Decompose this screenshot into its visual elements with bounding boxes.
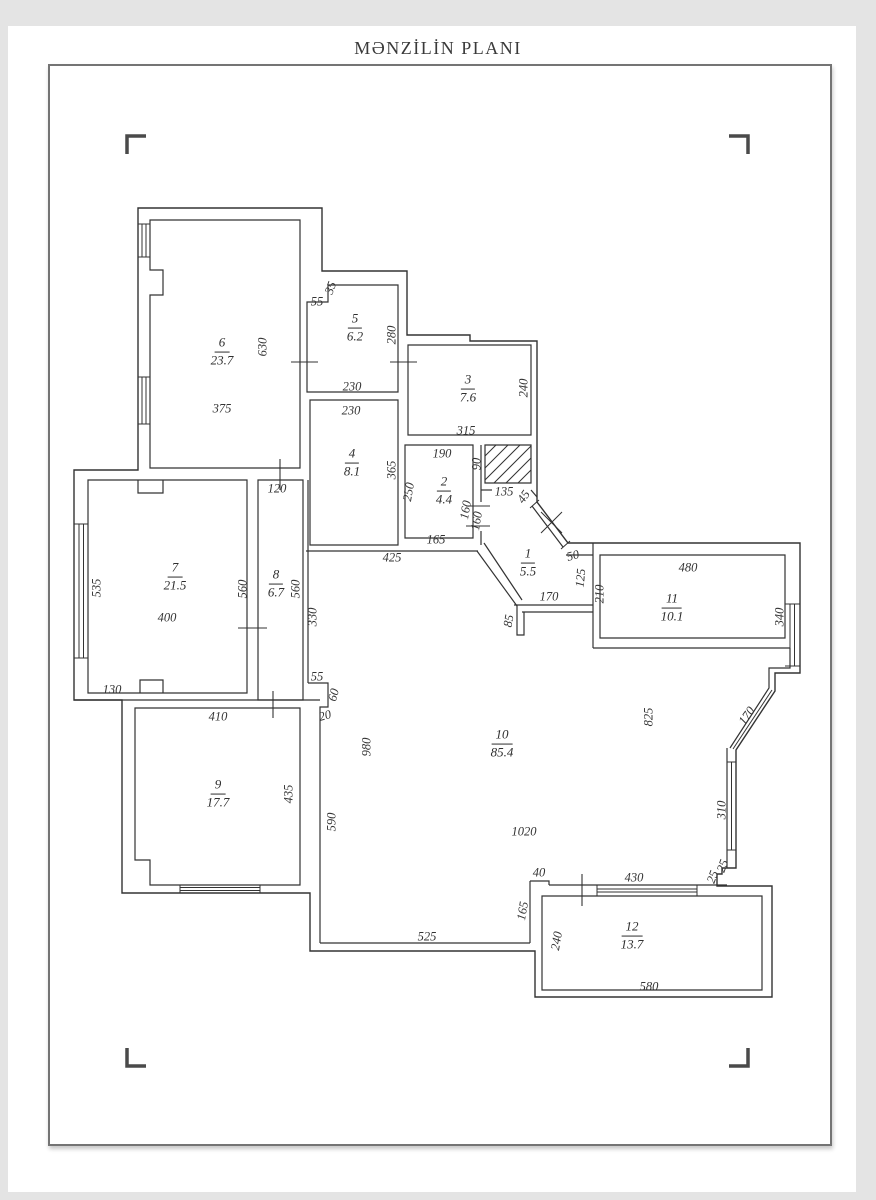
window-room11-right [785,604,800,666]
window-room6-lower [138,377,150,424]
room-2-outline [405,445,473,538]
room-6-outline [150,220,300,468]
room-9-outline [135,708,300,885]
crop-mark-bottom-right [729,1048,748,1066]
room-11-outline [600,555,785,638]
room-7-pier-top [138,480,163,493]
crop-mark-top-right [729,136,748,154]
room-8-outline [258,480,303,700]
room-7-outline [88,480,247,693]
room-7-pier-bottom [140,680,163,693]
floorplan-drawing [0,0,876,1200]
outer-walls [74,208,800,997]
window-room12-top [597,885,697,896]
window-diagonal-right [733,690,772,749]
room-12-outline [542,896,762,990]
window-room9-bottom [180,885,260,893]
window-room7-left [74,524,88,658]
room-5-outline [307,285,398,392]
crop-mark-bottom-left [127,1048,146,1066]
door-ticks [238,362,582,906]
room-4-outline [310,400,398,545]
shaft-hatch [485,445,531,483]
windows [74,224,800,896]
crop-mark-top-left [127,136,146,154]
scanned-plan-page: { "title": "MƏNZİLİN PLANI", "plan": { "… [0,0,876,1200]
room-3-outline [408,345,531,435]
window-vertical-310 [727,762,736,850]
window-room6-upper [138,224,150,257]
crop-marks [127,136,748,1066]
